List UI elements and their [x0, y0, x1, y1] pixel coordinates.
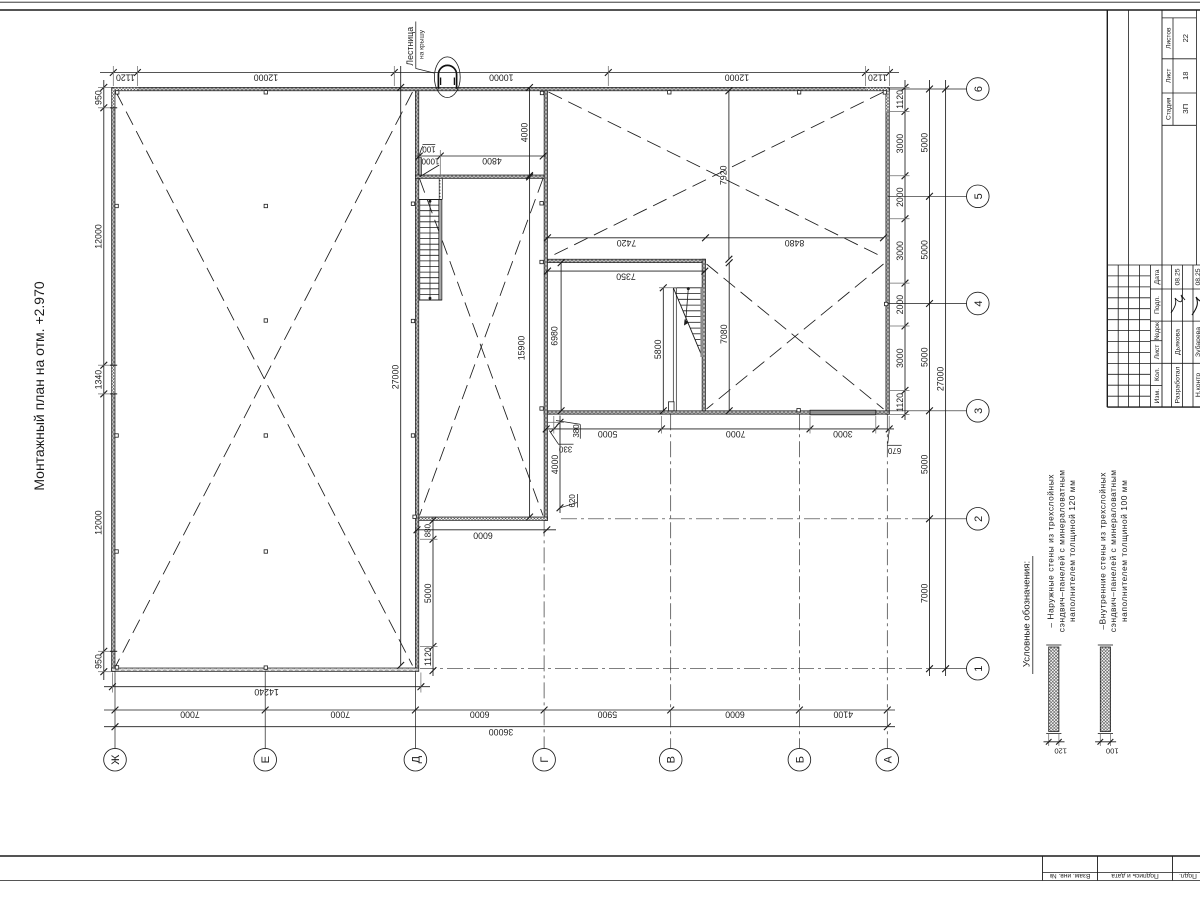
- svg-text:18: 18: [1181, 72, 1190, 80]
- svg-text:3000: 3000: [833, 429, 853, 439]
- svg-text:Дата: Дата: [1154, 269, 1161, 284]
- svg-text:4100: 4100: [833, 710, 853, 720]
- svg-text:5000: 5000: [423, 583, 433, 603]
- svg-text:7920: 7920: [719, 165, 729, 185]
- svg-text:08.25: 08.25: [1195, 268, 1200, 285]
- svg-text:В: В: [666, 756, 678, 763]
- svg-text:сэндвич–панелей с минераловатн: сэндвич–панелей с минераловатным: [1057, 469, 1067, 632]
- svg-text:4: 4: [973, 300, 985, 306]
- svg-text:Подпись и дата: Подпись и дата: [1111, 872, 1159, 879]
- svg-text:Подп.: Подп.: [1154, 296, 1161, 314]
- svg-text:12000: 12000: [254, 73, 279, 83]
- svg-text:Дьякова: Дьякова: [1174, 329, 1181, 355]
- svg-text:6000: 6000: [470, 710, 490, 720]
- svg-text:Н.контр: Н.контр: [1195, 373, 1200, 397]
- svg-text:Разработал: Разработал: [1173, 366, 1181, 403]
- svg-text:– Наружные стены из трехслойны: – Наружные стены из трехслойных: [1046, 474, 1056, 628]
- svg-text:3000: 3000: [895, 134, 905, 154]
- svg-text:Листов: Листов: [1165, 27, 1172, 49]
- svg-text:2: 2: [973, 516, 985, 522]
- svg-text:7000: 7000: [726, 429, 746, 439]
- svg-text:670: 670: [887, 446, 901, 455]
- svg-text:3: 3: [973, 408, 985, 414]
- svg-text:12000: 12000: [93, 510, 103, 535]
- svg-text:22: 22: [1181, 34, 1190, 42]
- svg-text:Зубарева: Зубарева: [1194, 327, 1200, 357]
- svg-text:Кол.: Кол.: [1154, 367, 1161, 381]
- svg-text:10000: 10000: [489, 73, 514, 83]
- svg-text:Г: Г: [539, 757, 551, 763]
- svg-text:Лист: Лист: [1165, 69, 1172, 83]
- svg-text:14240: 14240: [254, 687, 279, 697]
- svg-text:12000: 12000: [725, 73, 750, 83]
- svg-text:Лестница: Лестница: [405, 27, 415, 66]
- svg-text:6: 6: [973, 86, 985, 92]
- svg-text:4800: 4800: [482, 156, 502, 166]
- svg-text:380: 380: [572, 424, 581, 438]
- svg-text:1120: 1120: [895, 90, 905, 109]
- svg-text:15900: 15900: [517, 336, 527, 361]
- svg-text:5800: 5800: [653, 339, 663, 359]
- svg-text:4000: 4000: [550, 455, 560, 475]
- svg-text:1120: 1120: [423, 647, 433, 666]
- svg-text:1120: 1120: [868, 73, 887, 83]
- svg-text:7080: 7080: [719, 324, 729, 344]
- svg-text:Изм.: Изм.: [1154, 389, 1161, 404]
- svg-text:5900: 5900: [598, 710, 618, 720]
- svg-text:100: 100: [422, 144, 436, 153]
- svg-text:7000: 7000: [180, 710, 200, 720]
- svg-text:Монтажный план на отм. +2.970: Монтажный план на отм. +2.970: [31, 281, 47, 491]
- svg-text:на крышу: на крышу: [418, 29, 425, 59]
- svg-text:5000: 5000: [598, 429, 618, 439]
- svg-text:27000: 27000: [390, 365, 400, 390]
- svg-text:2000: 2000: [895, 187, 905, 207]
- svg-text:3000: 3000: [895, 348, 905, 368]
- svg-text:1120: 1120: [895, 393, 905, 412]
- svg-text:5: 5: [973, 193, 985, 199]
- svg-text:Условные обозначения:: Условные обозначения:: [1021, 561, 1032, 667]
- svg-text:наполнителем толщиной 120 мм: наполнителем толщиной 120 мм: [1067, 480, 1077, 622]
- svg-text:–Внутренние стены из трехслойн: –Внутренние стены из трехслойных: [1097, 472, 1107, 630]
- svg-text:3000: 3000: [895, 241, 905, 261]
- svg-text:36000: 36000: [489, 727, 514, 737]
- svg-text:330: 330: [558, 445, 572, 454]
- svg-text:120: 120: [1054, 746, 1067, 755]
- svg-text:5000: 5000: [919, 240, 929, 260]
- svg-text:1120: 1120: [116, 73, 135, 83]
- svg-text:наполнителем толщиной 100 мм: наполнителем толщиной 100 мм: [1119, 480, 1129, 622]
- svg-text:Е: Е: [260, 756, 272, 763]
- svg-text:7350: 7350: [616, 272, 636, 282]
- svg-text:620: 620: [568, 494, 577, 508]
- svg-text:7000: 7000: [919, 584, 929, 604]
- svg-text:1: 1: [973, 666, 985, 672]
- svg-text:27000: 27000: [935, 367, 945, 392]
- svg-text:7000: 7000: [330, 710, 350, 720]
- svg-text:Д: Д: [410, 755, 422, 763]
- svg-text:Подл.: Подл.: [1179, 872, 1197, 879]
- svg-text:12000: 12000: [93, 224, 103, 249]
- svg-text:Взам. инв. №: Взам. инв. №: [1050, 872, 1091, 879]
- svg-text:1000: 1000: [421, 156, 439, 165]
- svg-text:7420: 7420: [617, 238, 637, 248]
- svg-text:1340: 1340: [93, 370, 103, 390]
- svg-text:6000: 6000: [725, 710, 745, 720]
- svg-text:5000: 5000: [919, 347, 929, 367]
- svg-text:2000: 2000: [895, 295, 905, 315]
- svg-text:5000: 5000: [919, 133, 929, 153]
- svg-text:8480: 8480: [785, 238, 805, 248]
- svg-text:950: 950: [93, 90, 103, 105]
- svg-text:ЗП: ЗП: [1181, 104, 1190, 114]
- svg-text:100: 100: [1106, 746, 1119, 755]
- svg-text:Ж: Ж: [110, 755, 122, 765]
- svg-text:880: 880: [423, 523, 432, 537]
- svg-text:А: А: [882, 755, 894, 763]
- svg-text:Лист: Лист: [1154, 345, 1161, 360]
- svg-text:5000: 5000: [919, 455, 929, 475]
- svg-text:6980: 6980: [549, 326, 559, 346]
- svg-text:6000: 6000: [473, 530, 493, 540]
- svg-text:4000: 4000: [520, 123, 530, 143]
- svg-text:Б: Б: [794, 756, 806, 763]
- svg-text:сэндвич–панелей с минераловатн: сэндвич–панелей с минераловатным: [1108, 469, 1118, 632]
- svg-text:950: 950: [93, 654, 103, 669]
- svg-text:№док: №док: [1154, 322, 1161, 340]
- svg-text:Стадия: Стадия: [1165, 97, 1172, 120]
- svg-text:08.25: 08.25: [1174, 268, 1181, 285]
